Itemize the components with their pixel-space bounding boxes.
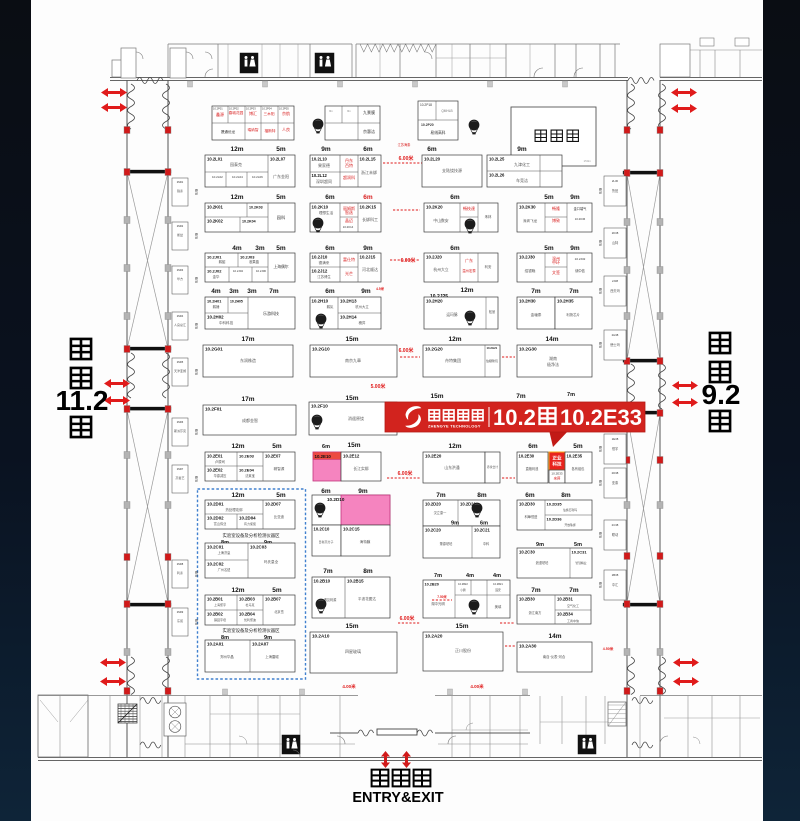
svg-text:10.2E33: 10.2E33 bbox=[560, 405, 642, 430]
svg-text:湖南: 湖南 bbox=[549, 355, 557, 361]
svg-text:10.2K04: 10.2K04 bbox=[242, 220, 256, 224]
svg-text:150m: 150m bbox=[583, 159, 591, 163]
svg-text:10.2D20: 10.2D20 bbox=[425, 502, 442, 507]
svg-text:6m: 6m bbox=[194, 233, 199, 240]
svg-text:10.2D36: 10.2D36 bbox=[547, 517, 563, 522]
svg-text:10.2G10: 10.2G10 bbox=[312, 347, 330, 352]
svg-text:6m: 6m bbox=[598, 188, 603, 195]
svg-text:2L30: 2L30 bbox=[612, 179, 619, 183]
svg-text:浙江未绑: 浙江未绑 bbox=[361, 169, 377, 175]
svg-text:来蒋: 来蒋 bbox=[554, 476, 561, 481]
svg-text:金口端气: 金口端气 bbox=[574, 206, 588, 211]
svg-text:伯糖隆玑: 伯糖隆玑 bbox=[486, 358, 498, 363]
svg-text:舟特集团: 舟特集团 bbox=[445, 357, 461, 363]
svg-text:7m: 7m bbox=[531, 288, 541, 295]
svg-text:8m: 8m bbox=[363, 568, 373, 575]
svg-text:卢原司: 卢原司 bbox=[215, 459, 225, 464]
svg-text:12m: 12m bbox=[230, 194, 243, 201]
svg-text:6m: 6m bbox=[194, 571, 199, 578]
svg-text:QMHLB: QMHLB bbox=[441, 109, 452, 113]
svg-text:理想生活: 理想生活 bbox=[319, 210, 334, 215]
svg-text:10.2C03: 10.2C03 bbox=[250, 545, 267, 550]
svg-text:5m: 5m bbox=[276, 146, 286, 153]
svg-text:10.2G01: 10.2G01 bbox=[205, 347, 223, 352]
svg-text:10.2B07: 10.2B07 bbox=[265, 597, 282, 602]
svg-text:实验室设备及分析检测仪器区: 实验室设备及分析检测仪器区 bbox=[222, 627, 280, 634]
svg-text:6m: 6m bbox=[427, 146, 437, 153]
svg-text:2K38: 2K38 bbox=[612, 231, 619, 235]
svg-text:6m: 6m bbox=[598, 446, 603, 453]
svg-text:5m: 5m bbox=[272, 443, 282, 450]
svg-text:9m: 9m bbox=[451, 521, 459, 527]
svg-text:10.2E10: 10.2E10 bbox=[315, 454, 332, 459]
svg-text:6m: 6m bbox=[598, 342, 603, 349]
svg-text:畅隆: 畅隆 bbox=[552, 205, 560, 211]
svg-text:湖中光明: 湖中光明 bbox=[431, 601, 445, 606]
svg-text:10.2J04: 10.2J04 bbox=[233, 269, 243, 273]
svg-text:6m: 6m bbox=[194, 323, 199, 330]
svg-text:9m: 9m bbox=[363, 245, 373, 252]
svg-text:美填: 美填 bbox=[495, 604, 502, 609]
svg-text:斯派莎克: 斯派莎克 bbox=[174, 428, 186, 433]
svg-text:17m: 17m bbox=[241, 396, 254, 403]
svg-text:5m: 5m bbox=[276, 194, 286, 201]
svg-text:10.2B34: 10.2B34 bbox=[557, 612, 574, 617]
svg-text:镇园宇培: 镇园宇培 bbox=[214, 617, 226, 622]
svg-text:15m: 15m bbox=[430, 393, 443, 400]
svg-text:6m: 6m bbox=[194, 277, 199, 284]
svg-text:广州名纽: 广州名纽 bbox=[218, 567, 232, 572]
svg-text:5m: 5m bbox=[272, 587, 282, 594]
svg-text:直格利递: 直格利递 bbox=[526, 466, 540, 471]
svg-text:禾林: 禾林 bbox=[485, 214, 492, 219]
svg-text:12m: 12m bbox=[230, 146, 243, 153]
svg-text:6m: 6m bbox=[321, 488, 331, 495]
svg-text:2J38: 2J38 bbox=[612, 279, 619, 283]
svg-text:5.00米: 5.00米 bbox=[371, 383, 387, 390]
svg-text:5m: 5m bbox=[544, 194, 554, 201]
svg-text:10.2K03: 10.2K03 bbox=[249, 206, 263, 210]
svg-text:科華恒盛: 科華恒盛 bbox=[525, 514, 539, 519]
svg-text:4m: 4m bbox=[466, 573, 474, 579]
svg-text:10.2A01: 10.2A01 bbox=[207, 642, 224, 647]
svg-text:4.5米: 4.5米 bbox=[376, 286, 385, 291]
svg-text:6m: 6m bbox=[598, 582, 603, 589]
svg-text:7.50米: 7.50米 bbox=[437, 594, 447, 599]
svg-text:6.00米: 6.00米 bbox=[401, 257, 417, 264]
svg-text:10.2H13: 10.2H13 bbox=[340, 299, 357, 304]
svg-text:郑州华晶: 郑州华晶 bbox=[220, 654, 234, 659]
svg-text:10.2B01: 10.2B01 bbox=[207, 597, 224, 602]
svg-text:德满来: 德满来 bbox=[319, 260, 330, 265]
svg-text:4.50米: 4.50米 bbox=[603, 646, 614, 651]
svg-text:春城花园: 春城花园 bbox=[229, 110, 244, 115]
svg-text:徳士玛: 徳士玛 bbox=[610, 342, 620, 347]
svg-text:10.2C21: 10.2C21 bbox=[474, 528, 491, 533]
svg-text:12m: 12m bbox=[460, 287, 473, 294]
svg-text:10.2J15: 10.2J15 bbox=[360, 255, 376, 260]
svg-text:正业: 正业 bbox=[552, 455, 562, 462]
svg-text:10.2A20: 10.2A20 bbox=[425, 634, 443, 639]
svg-text:2M01: 2M01 bbox=[177, 180, 184, 184]
svg-text:玛氏皇全: 玛氏皇全 bbox=[264, 559, 279, 564]
svg-text:2M06: 2M06 bbox=[177, 420, 184, 424]
svg-text:光芒: 光芒 bbox=[345, 270, 353, 276]
svg-text:10.2B31: 10.2B31 bbox=[557, 597, 574, 602]
svg-text:10.2B20: 10.2B20 bbox=[425, 583, 439, 587]
svg-text:10.2P03: 10.2P03 bbox=[246, 107, 256, 111]
svg-text:10.2B30: 10.2B30 bbox=[519, 597, 536, 602]
svg-text:7m: 7m bbox=[567, 392, 575, 398]
svg-text:7m: 7m bbox=[323, 568, 333, 575]
svg-text:超润科: 超润科 bbox=[343, 174, 355, 180]
svg-text:东贸: 东贸 bbox=[177, 618, 183, 623]
svg-text:10.2K36: 10.2K36 bbox=[575, 217, 586, 221]
svg-text:金塘泰: 金塘泰 bbox=[531, 312, 542, 317]
svg-text:广东金阳: 广东金阳 bbox=[273, 173, 289, 179]
svg-text:6m: 6m bbox=[525, 492, 535, 499]
svg-text:博致: 博致 bbox=[552, 217, 560, 223]
svg-text:10.2H35: 10.2H35 bbox=[557, 299, 574, 304]
svg-text:10.2D04: 10.2D04 bbox=[239, 516, 256, 521]
svg-text:5m: 5m bbox=[276, 492, 286, 499]
svg-text:富山伟业: 富山伟业 bbox=[214, 521, 227, 526]
svg-text:10.2E12: 10.2E12 bbox=[343, 454, 360, 459]
svg-text:2M08: 2M08 bbox=[177, 562, 184, 566]
svg-text:2M03: 2M03 bbox=[177, 268, 184, 272]
svg-text:鑫源: 鑫源 bbox=[216, 111, 224, 117]
svg-text:华方: 华方 bbox=[177, 276, 183, 281]
svg-text:2E38: 2E38 bbox=[612, 437, 619, 441]
svg-text:文签: 文签 bbox=[552, 269, 560, 275]
svg-text:10.2D07: 10.2D07 bbox=[265, 502, 282, 507]
svg-text:9m: 9m bbox=[570, 194, 580, 201]
svg-text:6.00米: 6.00米 bbox=[399, 155, 415, 162]
svg-text:液果晶: 液果晶 bbox=[249, 259, 260, 264]
svg-text:北京岳: 北京岳 bbox=[274, 609, 284, 614]
svg-text:九津化工: 九津化工 bbox=[514, 161, 530, 167]
svg-text:2M05: 2M05 bbox=[177, 360, 184, 364]
svg-text:10.2J03: 10.2J03 bbox=[240, 255, 255, 260]
svg-text:15m: 15m bbox=[345, 395, 358, 402]
svg-text:10.2K30: 10.2K30 bbox=[519, 205, 536, 210]
svg-text:6m: 6m bbox=[598, 532, 603, 539]
svg-text:10.2L12: 10.2L12 bbox=[312, 173, 328, 178]
svg-text:2D38: 2D38 bbox=[612, 471, 619, 475]
svg-text:10.2L15: 10.2L15 bbox=[360, 157, 377, 162]
svg-text:10.2A10: 10.2A10 bbox=[312, 634, 330, 639]
svg-text:8m: 8m bbox=[329, 109, 333, 113]
svg-text:10.2L20: 10.2L20 bbox=[424, 157, 441, 162]
svg-text:8m: 8m bbox=[477, 492, 487, 499]
svg-text:6m: 6m bbox=[194, 429, 199, 436]
svg-text:海特膜: 海特膜 bbox=[360, 539, 371, 544]
svg-text:10.2H02: 10.2H02 bbox=[207, 315, 224, 320]
svg-text:5m: 5m bbox=[573, 443, 583, 450]
svg-text:管辖精业: 管辖精业 bbox=[575, 561, 586, 565]
svg-text:长绑科工: 长绑科工 bbox=[362, 216, 378, 222]
svg-text:10.2E02: 10.2E02 bbox=[207, 468, 223, 473]
svg-text:优利聚迪: 优利聚迪 bbox=[244, 617, 256, 622]
svg-text:10.2J10: 10.2J10 bbox=[312, 255, 328, 260]
svg-text:中汇: 中汇 bbox=[612, 582, 619, 587]
svg-text:7m: 7m bbox=[436, 492, 446, 499]
svg-text:比亚迪: 比亚迪 bbox=[274, 514, 285, 519]
svg-text:10.2E01: 10.2E01 bbox=[207, 454, 223, 459]
svg-text:西夫玛: 西夫玛 bbox=[610, 288, 620, 293]
svg-text:10.2L26: 10.2L26 bbox=[489, 173, 505, 178]
svg-text:四星玻璃: 四星玻璃 bbox=[345, 648, 361, 654]
svg-text:法莱宝: 法莱宝 bbox=[245, 473, 255, 478]
svg-text:杜马克: 杜马克 bbox=[245, 602, 254, 607]
svg-text:6.00米: 6.00米 bbox=[399, 347, 415, 354]
svg-text:10.2H05: 10.2H05 bbox=[230, 300, 243, 304]
svg-text:中科: 中科 bbox=[483, 541, 490, 546]
svg-text:10.2D35: 10.2D35 bbox=[547, 502, 563, 507]
svg-text:15m: 15m bbox=[455, 623, 468, 630]
svg-text:15m: 15m bbox=[345, 623, 358, 630]
svg-text:10.2C15: 10.2C15 bbox=[343, 527, 360, 532]
svg-text:10.2J12: 10.2J12 bbox=[312, 269, 328, 274]
svg-text:5m: 5m bbox=[276, 245, 286, 252]
svg-text:10.2J20: 10.2J20 bbox=[426, 255, 442, 260]
svg-text:深圳飞龙: 深圳飞龙 bbox=[523, 218, 538, 223]
svg-text:10.2L25: 10.2L25 bbox=[489, 157, 505, 162]
svg-text:6m: 6m bbox=[528, 443, 538, 450]
svg-text:10.2: 10.2 bbox=[493, 405, 536, 430]
svg-text:果家德: 果家德 bbox=[318, 162, 330, 168]
svg-text:12m: 12m bbox=[448, 443, 461, 450]
svg-text:中科科技: 中科科技 bbox=[219, 320, 234, 325]
svg-text:10.2P20: 10.2P20 bbox=[421, 123, 434, 127]
svg-text:上海聚宇: 上海聚宇 bbox=[214, 602, 226, 607]
svg-text:10.2K10: 10.2K10 bbox=[312, 205, 329, 210]
svg-text:15m: 15m bbox=[345, 336, 358, 343]
svg-text:9m: 9m bbox=[361, 288, 371, 295]
svg-text:6.00米: 6.00米 bbox=[400, 615, 416, 622]
svg-text:山东洪通: 山东洪通 bbox=[444, 465, 459, 470]
svg-text:10.2C10: 10.2C10 bbox=[314, 527, 331, 532]
svg-text:10.2C01: 10.2C01 bbox=[207, 545, 224, 550]
svg-text:4m: 4m bbox=[493, 573, 501, 579]
svg-text:利扬芯片: 利扬芯片 bbox=[566, 312, 580, 317]
svg-text:10.2F10: 10.2F10 bbox=[311, 404, 328, 409]
svg-text:10.2H10: 10.2H10 bbox=[312, 299, 329, 304]
svg-text:10.2B02: 10.2B02 bbox=[207, 612, 224, 617]
svg-text:瑞纳智: 瑞纳智 bbox=[247, 127, 258, 132]
svg-text:10.2K01: 10.2K01 bbox=[207, 205, 224, 210]
svg-text:10.2A30: 10.2A30 bbox=[519, 644, 537, 649]
svg-text:10.2C30: 10.2C30 bbox=[519, 550, 536, 555]
svg-text:12m: 12m bbox=[231, 443, 244, 450]
svg-text:10.2C02: 10.2C02 bbox=[207, 562, 224, 567]
svg-text:6m: 6m bbox=[325, 245, 335, 252]
svg-text:7m: 7m bbox=[434, 573, 442, 579]
svg-text:ZHENGYE TECHNOLOGY: ZHENGYE TECHNOLOGY bbox=[428, 424, 481, 429]
svg-text:联动: 联动 bbox=[612, 532, 618, 537]
svg-text:松曼: 松曼 bbox=[489, 309, 496, 314]
svg-text:广东: 广东 bbox=[465, 257, 473, 263]
svg-text:10.2E35: 10.2E35 bbox=[567, 454, 583, 459]
svg-text:6m: 6m bbox=[322, 444, 330, 450]
svg-text:6m: 6m bbox=[194, 476, 199, 483]
svg-text:10.2E07: 10.2E07 bbox=[265, 454, 281, 459]
svg-text:15m: 15m bbox=[347, 442, 360, 449]
svg-text:杭州大立: 杭州大立 bbox=[433, 267, 448, 272]
svg-text:6m: 6m bbox=[363, 146, 373, 153]
svg-text:10.2J06: 10.2J06 bbox=[256, 269, 266, 273]
svg-text:10.2D30: 10.2D30 bbox=[519, 502, 536, 507]
svg-text:南自·仪表·河合: 南自·仪表·河合 bbox=[543, 654, 566, 659]
svg-text:10.2B21: 10.2B21 bbox=[493, 582, 503, 586]
svg-text:5m: 5m bbox=[574, 542, 582, 548]
svg-text:5m: 5m bbox=[544, 245, 554, 252]
svg-text:10.2B15: 10.2B15 bbox=[347, 579, 364, 584]
svg-text:消遥原绕: 消遥原绕 bbox=[348, 415, 364, 421]
svg-text:2M02: 2M02 bbox=[177, 224, 184, 228]
svg-text:固安: 固安 bbox=[495, 588, 501, 592]
svg-text:10.2J30: 10.2J30 bbox=[519, 255, 535, 260]
svg-text:10.2H01: 10.2H01 bbox=[207, 300, 221, 304]
svg-text:人良总汇: 人良总汇 bbox=[174, 322, 186, 327]
svg-text:京航: 京航 bbox=[282, 110, 290, 116]
svg-text:12m: 12m bbox=[231, 492, 244, 499]
svg-text:2M09: 2M09 bbox=[177, 610, 184, 614]
svg-text:汉立康一: 汉立康一 bbox=[434, 510, 448, 515]
svg-text:热处理攻绑: 热处理攻绑 bbox=[226, 507, 244, 512]
svg-text:河北顺达: 河北顺达 bbox=[362, 266, 378, 272]
svg-text:车竞洁: 车竞洁 bbox=[516, 177, 528, 183]
svg-text:10.2E04: 10.2E04 bbox=[239, 468, 255, 473]
svg-text:2H38: 2H38 bbox=[612, 333, 619, 337]
svg-text:4m: 4m bbox=[211, 288, 221, 295]
svg-text:乐游科技: 乐游科技 bbox=[263, 310, 279, 316]
svg-text:三木阳: 三木阳 bbox=[263, 111, 274, 116]
svg-text:运玛脉: 运玛脉 bbox=[446, 312, 458, 317]
svg-text:天津亚绑: 天津亚绑 bbox=[174, 368, 186, 373]
svg-text:10.2E30: 10.2E30 bbox=[519, 454, 535, 459]
svg-text:12m: 12m bbox=[231, 587, 244, 594]
svg-text:10.2K14: 10.2K14 bbox=[343, 225, 354, 229]
svg-text:东润株造: 东润株造 bbox=[240, 357, 256, 363]
svg-text:4.00米: 4.00米 bbox=[342, 683, 356, 690]
svg-text:7m: 7m bbox=[569, 587, 579, 594]
svg-text:10.2B22: 10.2B22 bbox=[458, 582, 468, 586]
svg-text:鹅锤: 鹅锤 bbox=[213, 304, 220, 309]
svg-text:富仕特: 富仕特 bbox=[343, 256, 355, 262]
svg-text:17m: 17m bbox=[241, 336, 254, 343]
svg-text:上海偶尔: 上海偶尔 bbox=[273, 264, 288, 269]
svg-text:精智源: 精智源 bbox=[274, 466, 285, 471]
svg-text:仙桃石利玛: 仙桃石利玛 bbox=[563, 508, 577, 512]
svg-text:10.2D02: 10.2D02 bbox=[207, 516, 224, 521]
svg-text:人良: 人良 bbox=[282, 126, 290, 132]
svg-text:正川股份: 正川股份 bbox=[455, 647, 471, 653]
svg-text:9m: 9m bbox=[536, 542, 544, 548]
svg-text:3m: 3m bbox=[229, 288, 239, 295]
svg-text:深圳超同: 深圳超同 bbox=[316, 178, 332, 184]
svg-text:各有组包: 各有组包 bbox=[572, 466, 586, 471]
svg-text:长江实绑: 长江实绑 bbox=[353, 466, 368, 471]
svg-text:利泰: 利泰 bbox=[177, 570, 183, 575]
svg-text:2M04: 2M04 bbox=[177, 314, 184, 318]
svg-text:绍银晚: 绍银晚 bbox=[525, 268, 536, 273]
svg-text:10.2G20: 10.2G20 bbox=[425, 347, 443, 352]
svg-text:晟通优龙: 晟通优龙 bbox=[221, 129, 236, 134]
svg-text:14m: 14m bbox=[548, 633, 561, 640]
svg-text:10.2A07: 10.2A07 bbox=[252, 642, 269, 647]
svg-text:7m: 7m bbox=[516, 393, 526, 400]
svg-text:9m: 9m bbox=[570, 245, 580, 252]
svg-text:园泰克: 园泰克 bbox=[230, 161, 242, 167]
svg-text:九景膜: 九景膜 bbox=[363, 109, 375, 115]
svg-text:8m: 8m bbox=[561, 492, 571, 499]
svg-text:10.2H30: 10.2H30 bbox=[519, 299, 536, 304]
svg-text:10.2K02: 10.2K02 bbox=[207, 219, 224, 224]
svg-text:华源减压: 华源减压 bbox=[214, 473, 228, 478]
svg-text:极净法: 极净法 bbox=[547, 361, 559, 367]
svg-text:6m: 6m bbox=[194, 619, 199, 626]
svg-text:10.2G21: 10.2G21 bbox=[487, 346, 498, 350]
svg-text:10.2B10: 10.2B10 bbox=[314, 579, 331, 584]
svg-text:2B38: 2B38 bbox=[612, 573, 619, 577]
svg-text:6m: 6m bbox=[598, 240, 603, 247]
svg-text:晶迈: 晶迈 bbox=[345, 217, 353, 223]
svg-text:10.2L01: 10.2L01 bbox=[207, 157, 223, 162]
svg-text:10.2E03: 10.2E03 bbox=[239, 454, 255, 459]
svg-text:金华: 金华 bbox=[213, 274, 220, 279]
svg-text:浪漫琥珀: 浪漫琥珀 bbox=[536, 560, 549, 565]
svg-text:ENTRY&EXIT: ENTRY&EXIT bbox=[352, 790, 443, 806]
svg-text:百特: 百特 bbox=[345, 162, 353, 168]
svg-text:科技: 科技 bbox=[552, 461, 562, 468]
svg-text:6m: 6m bbox=[194, 369, 199, 376]
svg-text:7m: 7m bbox=[269, 288, 279, 295]
svg-text:6m: 6m bbox=[325, 288, 335, 295]
svg-text:畅枝達: 畅枝達 bbox=[463, 205, 475, 211]
svg-text:10.2K20: 10.2K20 bbox=[426, 205, 443, 210]
svg-text:南京九章: 南京九章 bbox=[345, 357, 361, 363]
svg-text:10.2E20: 10.2E20 bbox=[425, 454, 442, 459]
svg-text:3m: 3m bbox=[255, 245, 265, 252]
svg-text:10.2H14: 10.2H14 bbox=[340, 315, 357, 320]
svg-text:有力使徒: 有力使徒 bbox=[244, 521, 256, 526]
svg-text:中山数安: 中山数安 bbox=[433, 218, 448, 223]
svg-text:6m: 6m bbox=[450, 245, 460, 252]
svg-text:鲁班: 鲁班 bbox=[612, 188, 619, 193]
svg-text:赤永合计: 赤永合计 bbox=[487, 465, 498, 469]
svg-text:9m: 9m bbox=[517, 146, 527, 153]
svg-text:京惠洁: 京惠洁 bbox=[363, 128, 375, 134]
svg-text:6m: 6m bbox=[598, 288, 603, 295]
svg-text:10.2J02: 10.2J02 bbox=[207, 269, 222, 274]
svg-text:绕中信: 绕中信 bbox=[575, 268, 585, 273]
svg-text:智选: 智选 bbox=[345, 209, 353, 215]
svg-text:博汇: 博汇 bbox=[249, 110, 257, 116]
svg-text:10.2E33: 10.2E33 bbox=[551, 472, 563, 476]
svg-text:7m: 7m bbox=[531, 587, 541, 594]
svg-text:杭州大立: 杭州大立 bbox=[355, 304, 369, 309]
svg-text:工商中信: 工商中信 bbox=[567, 618, 579, 623]
svg-text:10.2P05: 10.2P05 bbox=[279, 107, 289, 111]
svg-text:10.2B04: 10.2B04 bbox=[239, 612, 256, 617]
svg-text:易绒高科: 易绒高科 bbox=[430, 130, 445, 135]
svg-text:2M07: 2M07 bbox=[177, 467, 184, 471]
svg-text:穗弈: 穗弈 bbox=[359, 320, 366, 325]
svg-text:10.2D10: 10.2D10 bbox=[327, 497, 345, 502]
svg-text:10.2P01: 10.2P01 bbox=[213, 107, 223, 111]
svg-text:6m: 6m bbox=[325, 194, 335, 201]
